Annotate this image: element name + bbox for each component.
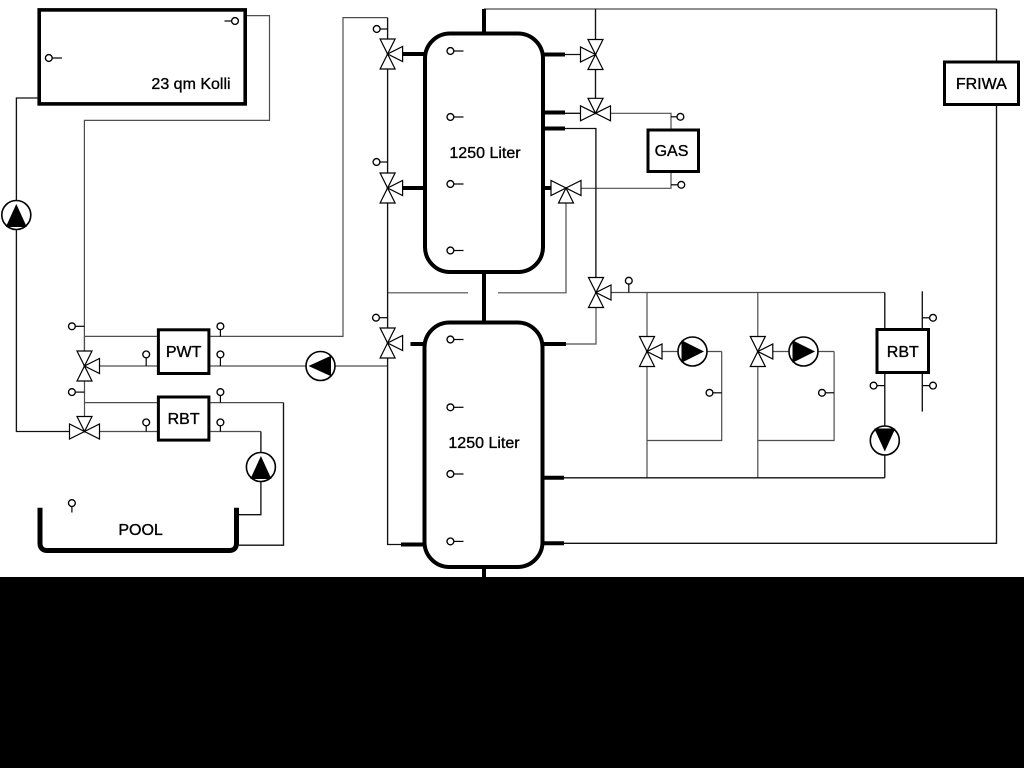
- svg-text:23 qm Kolli: 23 qm Kolli: [151, 76, 230, 93]
- svg-text:RBT: RBT: [168, 411, 200, 428]
- svg-text:POOL: POOL: [118, 522, 163, 539]
- svg-text:RBT: RBT: [887, 344, 919, 361]
- svg-text:1250 Liter: 1250 Liter: [448, 435, 520, 452]
- svg-text:1250 Liter: 1250 Liter: [449, 145, 521, 162]
- svg-text:FRIWA: FRIWA: [956, 76, 1007, 93]
- svg-text:PWT: PWT: [166, 344, 202, 361]
- svg-text:GAS: GAS: [655, 143, 689, 160]
